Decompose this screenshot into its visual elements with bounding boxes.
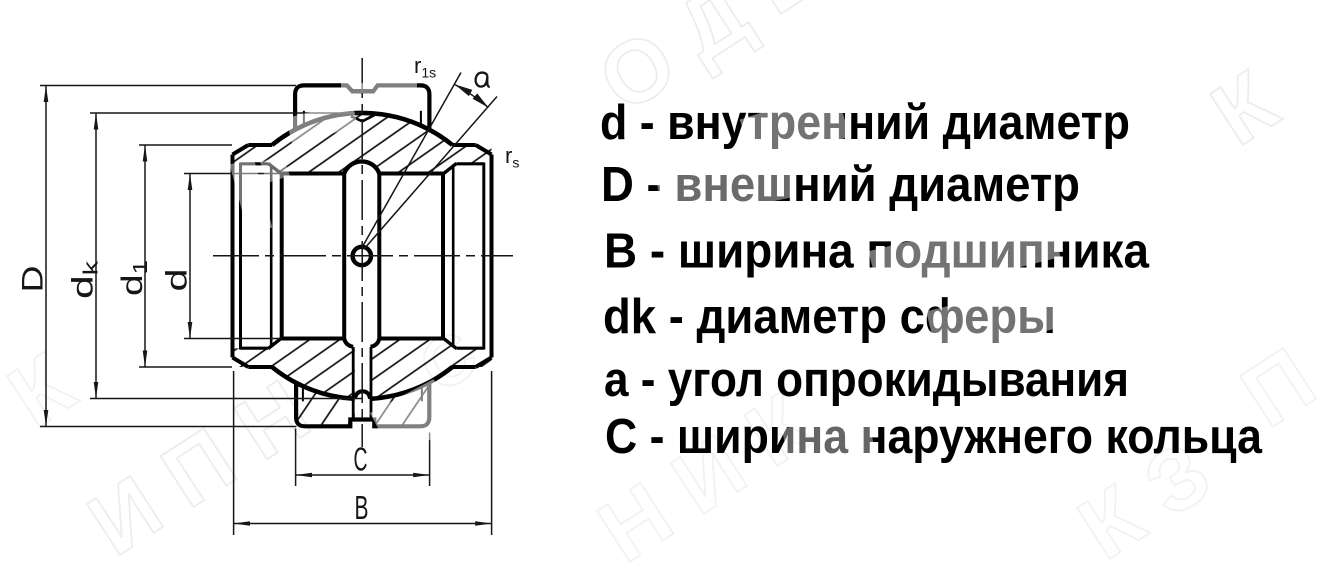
svg-text:D: D [17,266,50,293]
svg-text:B: B [355,489,369,526]
svg-text:a - угол опрокидывания: a - угол опрокидывания [604,352,1129,407]
svg-text:C: C [354,441,368,478]
svg-text:d: d [161,269,194,292]
svg-text:d - внутренний диаметр: d - внутренний диаметр [600,95,1130,150]
svg-text:C - ширина наружнего кольца: C - ширина наружнего кольца [605,409,1262,464]
